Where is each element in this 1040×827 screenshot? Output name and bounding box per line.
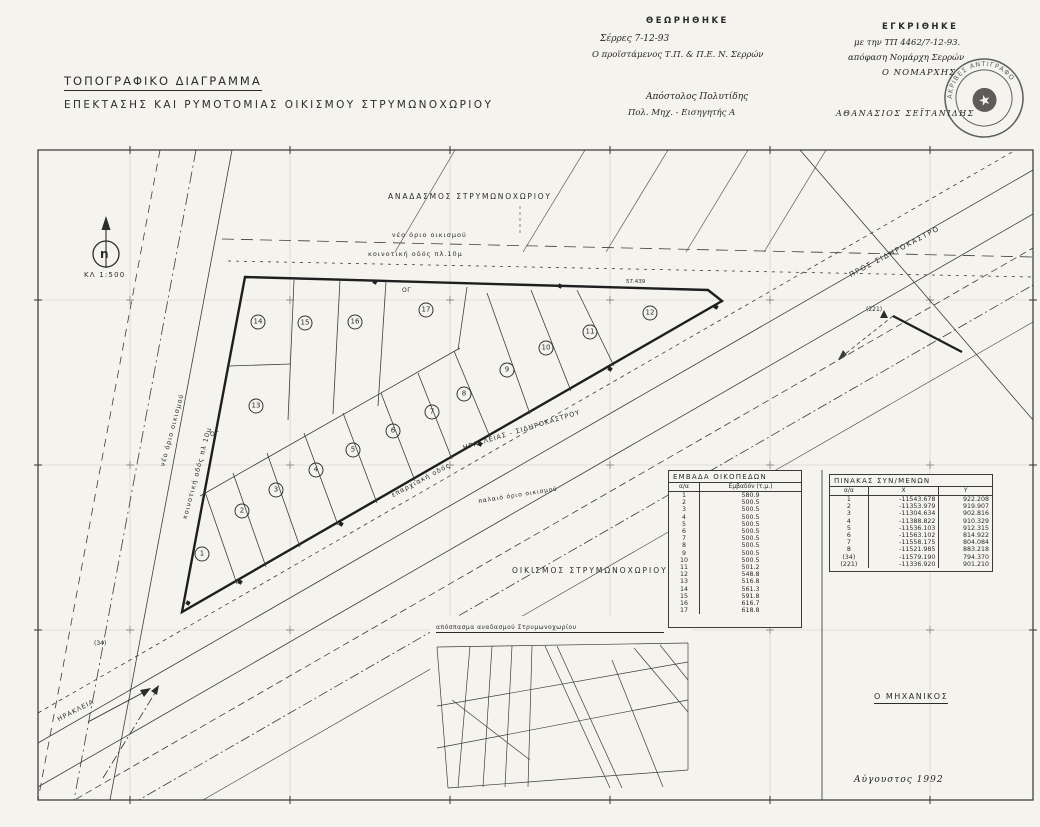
community-road-top-label: κοινοτική οδός πλ.10μ [368, 250, 463, 258]
areas-table-body: α/αΕμβαδόν (τ.μ.)1580.92500.53500.54500.… [669, 483, 801, 614]
table-cell: -11563.102 [868, 532, 939, 539]
parcel-number-3: 3 [269, 483, 284, 498]
parcel-number-11: 11 [583, 325, 598, 340]
table-header-cell: α/α [669, 483, 700, 492]
table-header-cell: α/α [830, 487, 868, 496]
table-cell: 580.9 [700, 492, 802, 500]
table-cell: 616.7 [700, 600, 802, 607]
table-cell: -11543.678 [868, 496, 939, 504]
table-cell: 618.8 [700, 607, 802, 614]
reviewed-heading: ΘΕΩΡΗΘΗΚΕ [646, 16, 729, 26]
parcel-number-5: 5 [346, 443, 361, 458]
table-row: 11501.2 [669, 564, 801, 571]
table-cell: 10 [669, 557, 700, 564]
table-cell: -11536.103 [868, 525, 939, 532]
parcel-number-7: 7 [425, 405, 440, 420]
table-cell: 500.5 [700, 514, 802, 521]
table-cell: 548.8 [700, 571, 802, 578]
table-row: 8500.5 [669, 542, 801, 549]
table-row: 7-11558.175804.084 [830, 539, 992, 546]
table-cell: 500.5 [700, 521, 802, 528]
coordinates-table-title: ΠΙΝΑΚΑΣ ΣΥΝ/ΜΕΝΩΝ [830, 475, 992, 487]
page-subtitle: ΕΠΕΚΤΑΣΗΣ ΚΑΙ ΡΥΜΟΤΟΜΙΑΣ ΟΙΚΙΣΜΟΥ ΣΤΡΥΜΩ… [64, 99, 493, 111]
date-label: Αύγουστος 1992 [854, 775, 944, 785]
table-row: 14561.3 [669, 586, 801, 593]
point-221-label: (221) [866, 306, 882, 313]
scale-label: ΚΛ 1:500 [84, 271, 125, 279]
settlement-label: ΟΙΚΙΣΜΟΣ ΣΤΡΥΜΩΝΟΧΩΡΙΟΥ [512, 566, 668, 575]
table-cell: 6 [830, 532, 868, 539]
table-cell: -11558.175 [868, 539, 939, 546]
table-cell: 804.084 [939, 539, 992, 546]
areas-table-title: ΕΜΒΑΔΑ ΟΙΚΟΠΕΔΩΝ [669, 471, 801, 483]
table-cell: 5 [669, 521, 700, 528]
table-cell: 500.5 [700, 542, 802, 549]
topographic-diagram-sheet: ΤΟΠΟΓΡΑΦΙΚΟ ΔΙΑΓΡΑΜΜΑ ΕΠΕΚΤΑΣΗΣ ΚΑΙ ΡΥΜΟ… [0, 0, 1040, 827]
coordinates-table: ΠΙΝΑΚΑΣ ΣΥΝ/ΜΕΝΩΝ α/αXY1-11543.678922.20… [829, 474, 993, 572]
table-row: 4-11388.822910.329 [830, 518, 992, 525]
table-cell: 902.816 [939, 510, 992, 517]
approved-authority: απόφαση Νομάρχη Σερρών [848, 53, 964, 63]
approved-heading: ΕΓΚΡΙΘΗΚΕ [882, 22, 958, 32]
table-cell: 7 [669, 535, 700, 542]
table-cell: -11521.985 [868, 546, 939, 553]
building-line-label-1: ΟΓ [402, 287, 411, 294]
table-row: 4500.5 [669, 514, 801, 521]
table-row: 6-11563.102814.922 [830, 532, 992, 539]
table-cell: 4 [669, 514, 700, 521]
table-row: 6500.5 [669, 528, 801, 535]
table-cell: 500.5 [700, 499, 802, 506]
approved-decision: με την ΤΠ 4462/7-12-93. [854, 38, 960, 48]
table-cell: 15 [669, 593, 700, 600]
table-cell: (221) [830, 561, 868, 568]
table-cell: 3 [830, 510, 868, 517]
table-cell: 1 [669, 492, 700, 500]
table-cell: 883.218 [939, 546, 992, 553]
table-cell: 500.5 [700, 506, 802, 513]
table-row: 2500.5 [669, 499, 801, 506]
table-cell: 6 [669, 528, 700, 535]
table-row: 9500.5 [669, 550, 801, 557]
inset-title: απόσπασμα αναδασμού Στρυμωνοχωρίου [436, 624, 664, 633]
table-row: (221)-11336.920901.210 [830, 561, 992, 568]
page-title: ΤΟΠΟΓΡΑΦΙΚΟ ΔΙΑΓΡΑΜΜΑ [64, 74, 262, 91]
table-cell: 1 [830, 496, 868, 504]
redistribution-area-label: ΑΝΑΔΑΣΜΟΣ ΣΤΡΥΜΩΝΟΧΩΡΙΟΥ [388, 192, 552, 201]
table-row: 16616.7 [669, 600, 801, 607]
table-cell: 500.5 [700, 557, 802, 564]
table-cell: 500.5 [700, 550, 802, 557]
community-road-lines [38, 150, 232, 800]
table-cell: -11336.920 [868, 561, 939, 568]
table-row: 1-11543.678922.208 [830, 496, 992, 504]
table-cell: 12 [669, 571, 700, 578]
parcel-number-13: 13 [249, 399, 264, 414]
irakleia-arrows [88, 685, 159, 778]
table-cell: 516.8 [700, 578, 802, 585]
table-row: 3500.5 [669, 506, 801, 513]
parcel-number-10: 10 [539, 341, 554, 356]
table-cell: 2 [830, 503, 868, 510]
table-cell: 912.315 [939, 525, 992, 532]
table-cell: 919.907 [939, 503, 992, 510]
table-cell: -11388.822 [868, 518, 939, 525]
table-row: 13516.8 [669, 578, 801, 585]
table-cell: 9 [669, 550, 700, 557]
table-cell: 794.370 [939, 554, 992, 561]
parcel-number-8: 8 [457, 387, 472, 402]
areas-table: ΕΜΒΑΔΑ ΟΙΚΟΠΕΔΩΝ α/αΕμβαδόν (τ.μ.)1580.9… [668, 470, 802, 628]
reviewed-place-date: Σέρρες 7-12-93 [600, 34, 669, 44]
table-cell: 11 [669, 564, 700, 571]
parcel-number-4: 4 [309, 463, 324, 478]
table-row: 12548.8 [669, 571, 801, 578]
table-cell: -11579.190 [868, 554, 939, 561]
table-header-cell: X [868, 487, 939, 496]
table-row: 15591.8 [669, 593, 801, 600]
table-cell: 17 [669, 607, 700, 614]
table-row: 5-11536.103912.315 [830, 525, 992, 532]
table-cell: 500.5 [700, 528, 802, 535]
table-cell: -11353.979 [868, 503, 939, 510]
table-cell: 5 [830, 525, 868, 532]
table-cell: -11304.634 [868, 510, 939, 517]
dimension-label: 57.439 [626, 279, 645, 285]
building-line-label-2: ΟΓ [210, 431, 219, 438]
table-row: 5500.5 [669, 521, 801, 528]
table-cell: 500.5 [700, 535, 802, 542]
table-row: 1580.9 [669, 492, 801, 500]
table-cell: 8 [830, 546, 868, 553]
table-cell: 922.208 [939, 496, 992, 504]
reviewed-name: Απόστολος Πολυτίδης [646, 92, 748, 102]
table-row: 10500.5 [669, 557, 801, 564]
table-cell: 7 [830, 539, 868, 546]
table-row: 17618.8 [669, 607, 801, 614]
new-boundary-top-label: νέο όριο οικισμού [392, 231, 467, 239]
table-cell: 8 [669, 542, 700, 549]
table-cell: 2 [669, 499, 700, 506]
north-symbol: n [100, 247, 109, 261]
table-row: 7500.5 [669, 535, 801, 542]
table-row: 8-11521.985883.218 [830, 546, 992, 553]
parcel-number-12: 12 [643, 306, 658, 321]
coordinates-table-body: α/αXY1-11543.678922.2082-11353.979919.90… [830, 487, 992, 568]
table-cell: 910.329 [939, 518, 992, 525]
parcel-number-15: 15 [298, 316, 313, 331]
reviewed-officer: Ο προϊστάμενος Τ.Π. & Π.Ε. Ν. Σερρών [592, 50, 763, 60]
parcel-number-17: 17 [419, 303, 434, 318]
table-cell: 561.3 [700, 586, 802, 593]
parcel-number-14: 14 [251, 315, 266, 330]
parcel-number-16: 16 [348, 315, 363, 330]
table-header-cell: Εμβαδόν (τ.μ.) [700, 483, 802, 492]
table-row: 2-11353.979919.907 [830, 503, 992, 510]
table-cell: 13 [669, 578, 700, 585]
parcel-number-6: 6 [386, 424, 401, 439]
table-header-cell: Y [939, 487, 992, 496]
table-row: (34)-11579.190794.370 [830, 554, 992, 561]
table-cell: 501.2 [700, 564, 802, 571]
parcel-number-9: 9 [500, 363, 515, 378]
table-row: 3-11304.634902.816 [830, 510, 992, 517]
table-cell: 16 [669, 600, 700, 607]
parcel-number-2: 2 [235, 504, 250, 519]
table-cell: 14 [669, 586, 700, 593]
table-cell: 901.210 [939, 561, 992, 568]
reviewed-role: Πολ. Μηχ. - Εισηγητής Α [628, 108, 735, 118]
engineer-label: Ο ΜΗΧΑΝΙΚΟΣ [874, 692, 948, 704]
point-34-label: (34) [94, 640, 106, 647]
table-cell: 591.8 [700, 593, 802, 600]
table-cell: 3 [669, 506, 700, 513]
inset-map [430, 616, 692, 794]
table-cell: (34) [830, 554, 868, 561]
table-cell: 814.922 [939, 532, 992, 539]
parcel-number-1: 1 [195, 547, 210, 562]
station-marks [185, 279, 718, 605]
table-cell: 4 [830, 518, 868, 525]
